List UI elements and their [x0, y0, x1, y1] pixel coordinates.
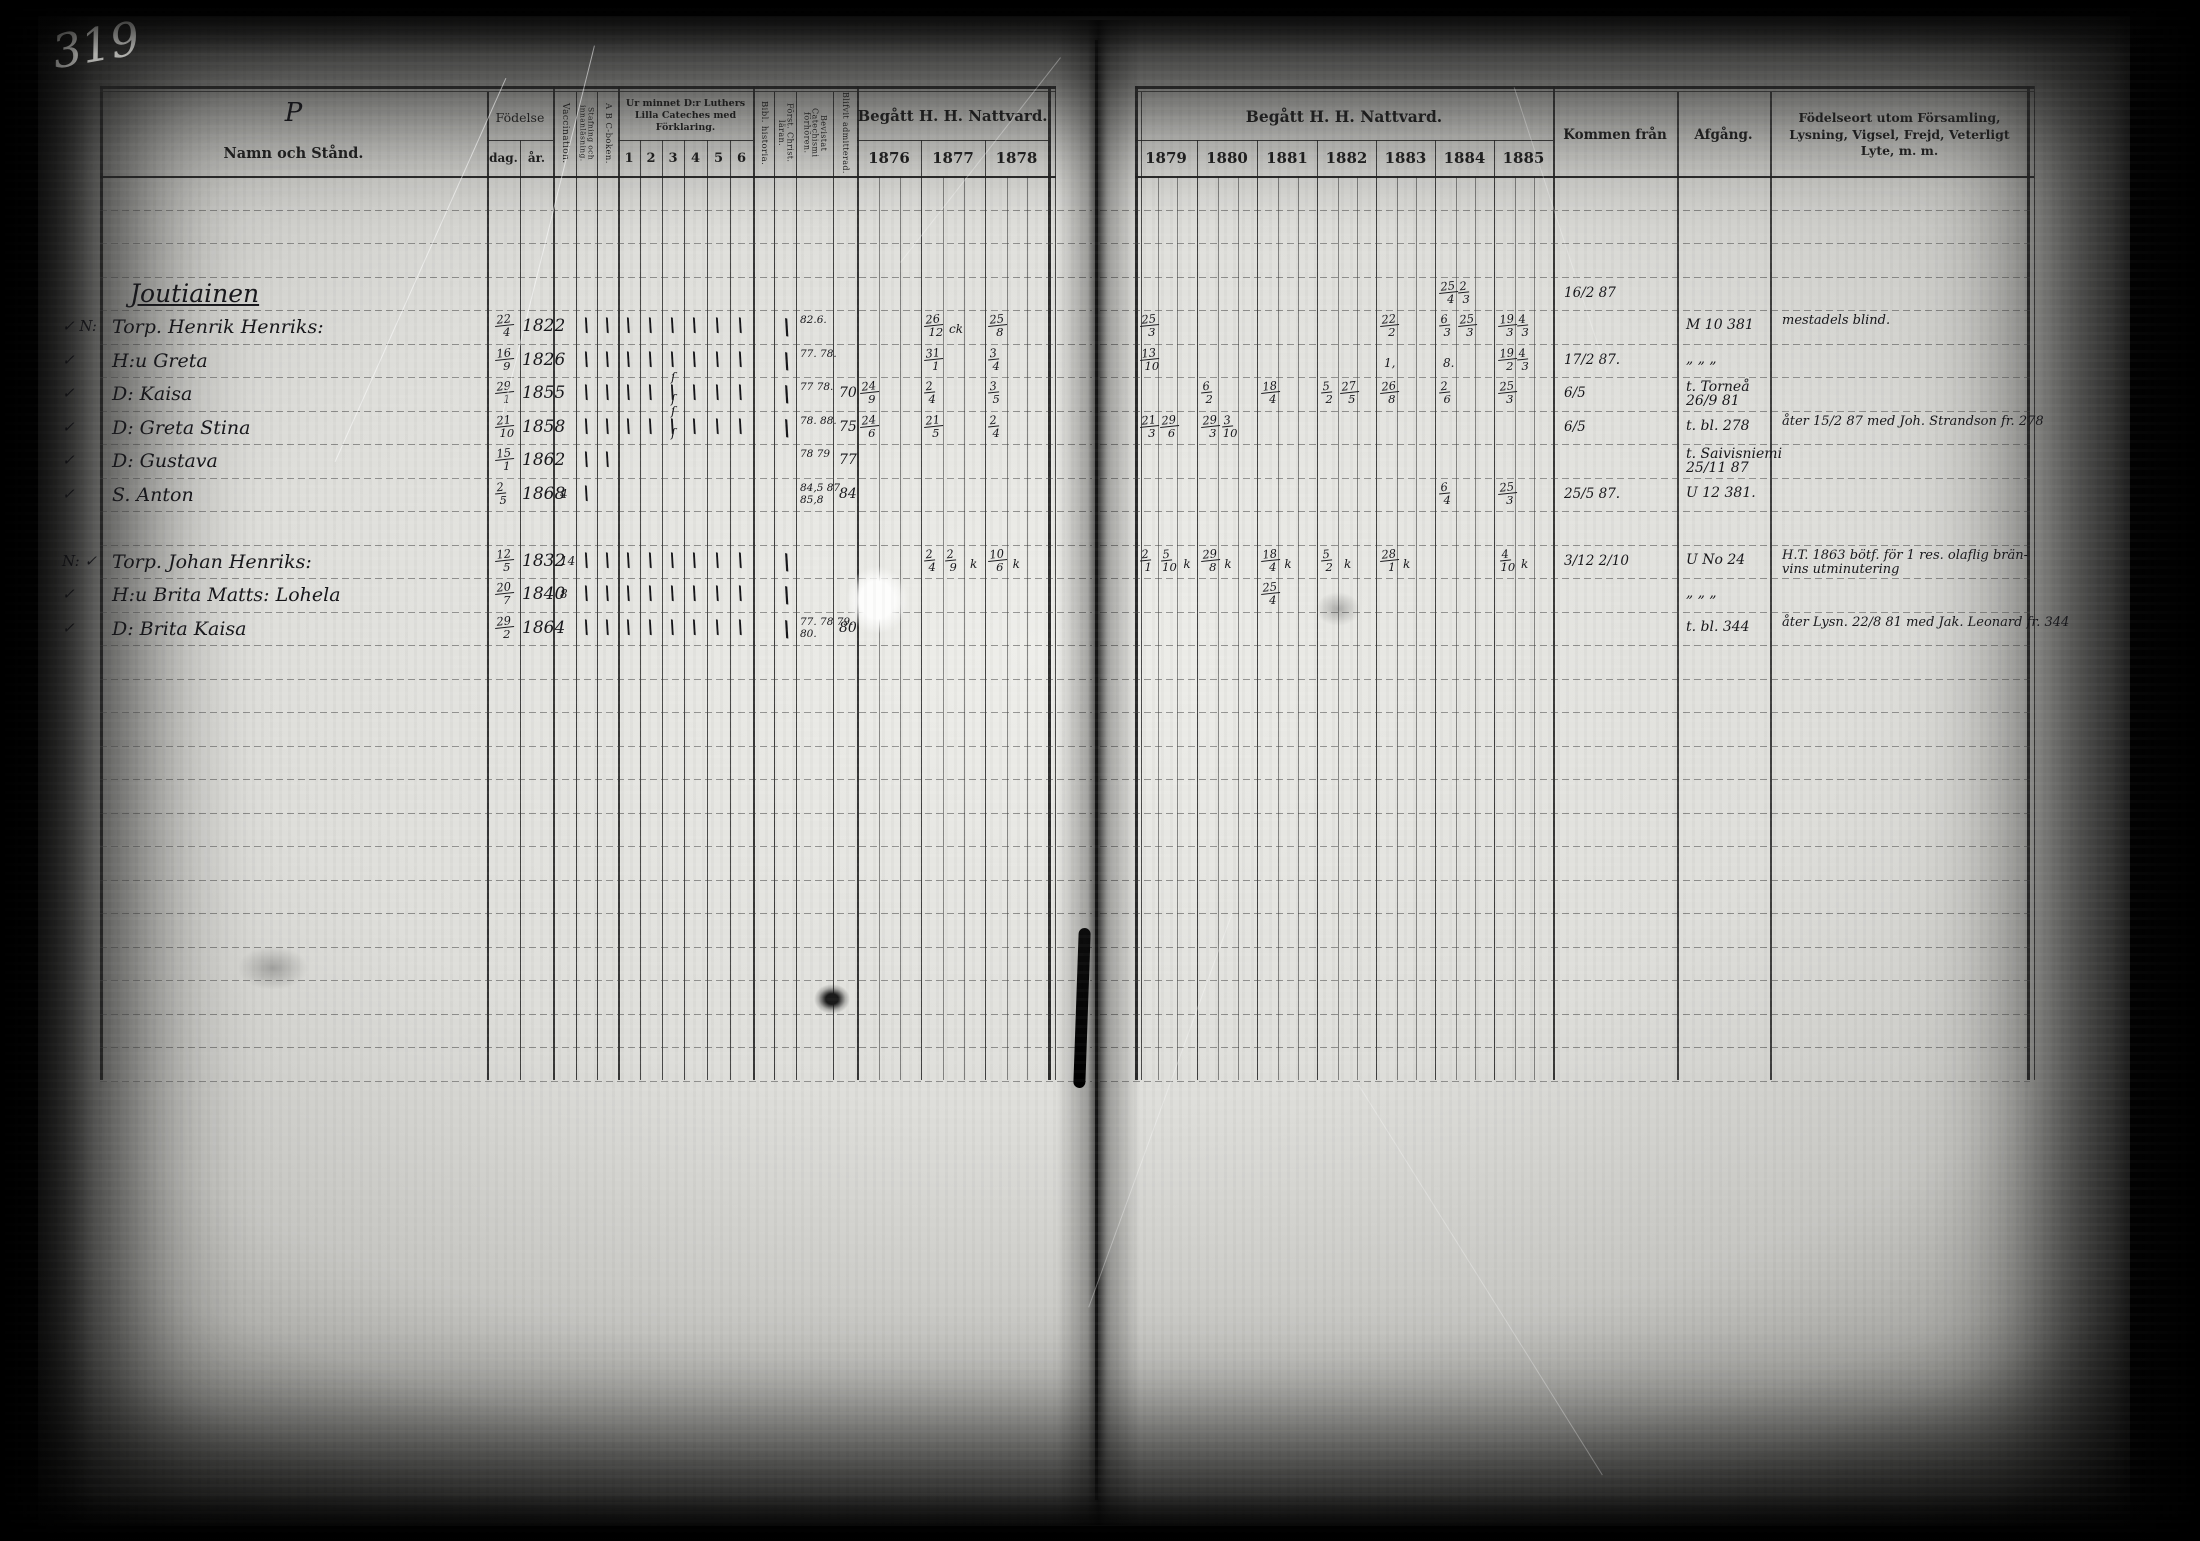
- birth-day: 224: [496, 313, 515, 338]
- doctrine-check: \: [780, 582, 793, 607]
- doctrine-check: \: [780, 415, 793, 440]
- catechism-check: \: [667, 348, 678, 370]
- note-entry: mestadels blind.: [1782, 313, 1890, 328]
- communion-date: 213: [1141, 414, 1160, 439]
- catechism-check: \: [735, 549, 746, 571]
- catechism-check: \: [623, 315, 634, 337]
- note-entry: vins utminutering: [1782, 562, 1900, 577]
- communion-mark: k: [1013, 557, 1020, 571]
- exam-years: 84,5 87.: [800, 482, 843, 494]
- catechism-check: \: [667, 616, 678, 638]
- communion-date: 298: [1202, 548, 1221, 573]
- communion-date: 253: [1499, 380, 1518, 405]
- communion-date: 268: [1381, 380, 1400, 405]
- communion-date: 23: [1459, 280, 1470, 305]
- person-name: D: Brita Kaisa: [112, 618, 246, 640]
- catechism-check: \: [667, 315, 678, 337]
- note-entry: H.T. 1863 bötf. för 1 res. olaflig brän-: [1782, 548, 2028, 563]
- communion-mark: k: [1403, 557, 1410, 571]
- communion-date: 249: [861, 380, 880, 405]
- catechism-check: \: [735, 382, 746, 404]
- catechism-check: \: [581, 549, 592, 571]
- catechism-check: \: [602, 348, 613, 370]
- vaccination-mark: 8: [560, 587, 568, 601]
- margin-mark: ✓: [62, 585, 75, 603]
- communion-date: 52: [1322, 380, 1333, 405]
- margin-mark: ✓: [62, 619, 75, 637]
- communion-date: 293: [1202, 414, 1221, 439]
- exam-years: 78 79: [800, 448, 830, 460]
- catechism-check: \: [735, 315, 746, 337]
- person-name: D: Kaisa: [112, 383, 192, 405]
- come-from-entry: 6/5: [1564, 385, 1586, 401]
- catechism-check: \: [581, 583, 592, 605]
- catechism-check: \: [602, 415, 613, 437]
- note-entry: åter Lysn. 22/8 81 med Jak. Leonard fr. …: [1782, 615, 2069, 630]
- catechism-check: \: [602, 449, 613, 471]
- birth-day: 169: [496, 347, 515, 372]
- departure-entry: U 12 381.: [1686, 485, 1756, 501]
- communion-date: 2612: [925, 313, 944, 338]
- catechism-check: \: [645, 348, 656, 370]
- catechism-check: \: [712, 315, 723, 337]
- birth-year: 1822: [522, 316, 565, 336]
- exam-squiggle: ſ: [671, 426, 675, 440]
- come-from-entry: 3/12 2/10: [1564, 553, 1629, 569]
- person-name: H:u Brita Matts: Lohela: [112, 584, 341, 606]
- come-from-entry: 16/2 87: [1564, 285, 1616, 301]
- catechism-check: \: [645, 616, 656, 638]
- birth-day: 291: [496, 380, 515, 405]
- vaccination-mark: 14: [560, 554, 575, 568]
- communion-date: 258: [989, 313, 1008, 338]
- communion-date: 184: [1262, 380, 1281, 405]
- birth-year: 1826: [522, 350, 565, 370]
- departure-entry: 26/9 81: [1686, 393, 1740, 409]
- catechism-check: \: [623, 415, 634, 437]
- communion-date: 192: [1499, 347, 1518, 372]
- communion-date: 52: [1322, 548, 1333, 573]
- exam-years: 77 78.: [800, 381, 833, 393]
- communion-date: 106: [989, 548, 1008, 573]
- communion-date: 34: [989, 347, 1000, 372]
- come-from-entry: 25/5 87.: [1564, 486, 1620, 502]
- catechism-check: \: [602, 382, 613, 404]
- communion-date: 281: [1381, 548, 1400, 573]
- communion-date: 193: [1499, 313, 1518, 338]
- margin-mark: ✓: [62, 384, 75, 402]
- communion-date: 62: [1202, 380, 1213, 405]
- catechism-check: \: [623, 348, 634, 370]
- communion-mark: 8.: [1443, 356, 1454, 370]
- section-heading: Joutiainen: [130, 279, 259, 308]
- communion-date: 275: [1341, 380, 1360, 405]
- communion-date: 215: [925, 414, 944, 439]
- departure-entry: 25/11 87: [1686, 460, 1749, 476]
- communion-mark: k: [970, 557, 977, 571]
- communion-date: 296: [1161, 414, 1180, 439]
- catechism-check: \: [667, 549, 678, 571]
- communion-mark: k: [1183, 557, 1190, 571]
- communion-date: 24: [925, 548, 936, 573]
- communion-date: 64: [1440, 481, 1451, 506]
- doctrine-check: \: [780, 314, 793, 339]
- margin-mark: ✓: [62, 485, 75, 503]
- catechism-check: \: [581, 482, 592, 504]
- exam-squiggle: ſ: [671, 404, 675, 418]
- person-name: D: Gustava: [112, 450, 218, 472]
- communion-date: 1310: [1141, 347, 1160, 372]
- handwritten-entries: Joutiainen2542316/2 87✓ N:Torp. Henrik H…: [0, 0, 2200, 1541]
- communion-mark: k: [1284, 557, 1291, 571]
- communion-date: 311: [925, 347, 944, 372]
- departure-entry: M 10 381: [1686, 317, 1754, 333]
- communion-date: 254: [1440, 280, 1459, 305]
- catechism-check: \: [735, 583, 746, 605]
- catechism-check: \: [689, 315, 700, 337]
- admitted-year: 70: [839, 385, 857, 401]
- communion-date: 26: [1440, 380, 1451, 405]
- catechism-check: \: [712, 616, 723, 638]
- communion-date: 246: [861, 414, 880, 439]
- catechism-check: \: [689, 616, 700, 638]
- communion-mark: k: [1224, 557, 1231, 571]
- admitted-year: 77: [839, 452, 857, 468]
- communion-date: 253: [1141, 313, 1160, 338]
- exam-years: 78. 88.: [800, 415, 837, 427]
- microfilm-scan: 319 P Namn och Stånd. Födelse dag. år. V…: [0, 0, 2200, 1541]
- communion-mark: ck: [949, 322, 963, 336]
- catechism-check: \: [581, 449, 592, 471]
- catechism-check: \: [645, 382, 656, 404]
- catechism-check: \: [689, 549, 700, 571]
- catechism-check: \: [602, 315, 613, 337]
- margin-mark: ✓: [62, 418, 75, 436]
- birth-day: 25: [496, 481, 507, 506]
- communion-mark: 1,: [1384, 356, 1395, 370]
- catechism-check: \: [645, 583, 656, 605]
- admitted-year: 80: [839, 620, 857, 636]
- margin-mark: N: ✓: [62, 552, 97, 570]
- catechism-check: \: [623, 549, 634, 571]
- catechism-check: \: [581, 382, 592, 404]
- birth-year: 1832: [522, 551, 565, 571]
- catechism-check: \: [689, 415, 700, 437]
- departure-entry: „ „ „: [1686, 351, 1717, 367]
- communion-date: 510: [1161, 548, 1176, 573]
- communion-date: 24: [925, 380, 936, 405]
- catechism-check: \: [712, 583, 723, 605]
- catechism-check: \: [602, 549, 613, 571]
- catechism-check: \: [689, 382, 700, 404]
- departure-entry: „ „ „: [1686, 585, 1717, 601]
- catechism-check: \: [581, 616, 592, 638]
- departure-entry: t. bl. 278: [1686, 418, 1750, 434]
- exam-years: 85,8: [800, 494, 823, 506]
- admitted-year: 84: [839, 486, 857, 502]
- communion-date: 35: [989, 380, 1000, 405]
- catechism-check: \: [581, 348, 592, 370]
- person-name: Torp. Johan Henriks:: [112, 551, 312, 573]
- note-entry: åter 15/2 87 med Joh. Strandson fr. 278: [1782, 414, 2044, 429]
- margin-mark: ✓: [62, 451, 75, 469]
- doctrine-check: \: [780, 549, 793, 574]
- birth-year: 1868: [522, 484, 565, 504]
- catechism-check: \: [645, 315, 656, 337]
- communion-date: 222: [1381, 313, 1400, 338]
- catechism-check: \: [667, 583, 678, 605]
- birth-year: 1855: [522, 383, 565, 403]
- catechism-check: \: [645, 415, 656, 437]
- communion-date: 21: [1141, 548, 1152, 573]
- exam-years: 80.: [800, 628, 817, 640]
- catechism-check: \: [623, 382, 634, 404]
- vaccination-mark: 4: [560, 487, 568, 501]
- exam-years: 82.6.: [800, 314, 827, 326]
- doctrine-check: \: [780, 381, 793, 406]
- departure-entry: U No 24: [1686, 552, 1745, 568]
- communion-date: 253: [1499, 481, 1518, 506]
- communion-date: 29: [946, 548, 957, 573]
- catechism-check: \: [735, 348, 746, 370]
- margin-mark: ✓: [62, 351, 75, 369]
- admitted-year: 75: [839, 419, 857, 435]
- departure-entry: t. bl. 344: [1686, 619, 1750, 635]
- person-name: Torp. Henrik Henriks:: [112, 316, 324, 338]
- catechism-check: \: [581, 415, 592, 437]
- communion-date: 254: [1262, 581, 1281, 606]
- catechism-check: \: [735, 616, 746, 638]
- catechism-check: \: [602, 616, 613, 638]
- communion-date: 43: [1518, 313, 1529, 338]
- catechism-check: \: [581, 315, 592, 337]
- catechism-check: \: [712, 415, 723, 437]
- birth-day: 207: [496, 581, 515, 606]
- birth-year: 1862: [522, 450, 565, 470]
- catechism-check: \: [645, 549, 656, 571]
- exam-squiggle: ſ: [671, 370, 675, 384]
- communion-date: 310: [1221, 414, 1236, 439]
- catechism-check: \: [712, 549, 723, 571]
- birth-year: 1858: [522, 417, 565, 437]
- catechism-check: \: [602, 583, 613, 605]
- communion-date: 184: [1262, 548, 1281, 573]
- person-name: D: Greta Stina: [112, 417, 250, 439]
- birth-day: 151: [496, 447, 515, 472]
- page-gutter-line: [1095, 40, 1098, 1500]
- catechism-check: \: [712, 348, 723, 370]
- person-name: S. Anton: [112, 484, 194, 506]
- catechism-check: \: [735, 415, 746, 437]
- communion-mark: k: [1344, 557, 1351, 571]
- margin-mark: ✓ N:: [62, 317, 97, 335]
- communion-date: 43: [1518, 347, 1529, 372]
- communion-date: 24: [989, 414, 1000, 439]
- catechism-check: \: [712, 382, 723, 404]
- catechism-check: \: [689, 583, 700, 605]
- communion-date: 63: [1440, 313, 1451, 338]
- exam-years: 77. 78.: [800, 348, 837, 360]
- come-from-entry: 6/5: [1564, 419, 1586, 435]
- doctrine-check: \: [780, 348, 793, 373]
- doctrine-check: \: [780, 616, 793, 641]
- communion-mark: k: [1521, 557, 1528, 571]
- catechism-check: \: [689, 348, 700, 370]
- communion-date: 253: [1459, 313, 1478, 338]
- catechism-check: \: [623, 583, 634, 605]
- birth-day: 125: [496, 548, 515, 573]
- person-name: H:u Greta: [112, 350, 208, 372]
- catechism-check: \: [623, 616, 634, 638]
- birth-year: 1864: [522, 618, 565, 638]
- birth-year: 1840: [522, 584, 565, 604]
- birth-day: 292: [496, 615, 515, 640]
- birth-day: 2110: [496, 414, 515, 439]
- come-from-entry: 17/2 87.: [1564, 352, 1620, 368]
- communion-date: 410: [1499, 548, 1514, 573]
